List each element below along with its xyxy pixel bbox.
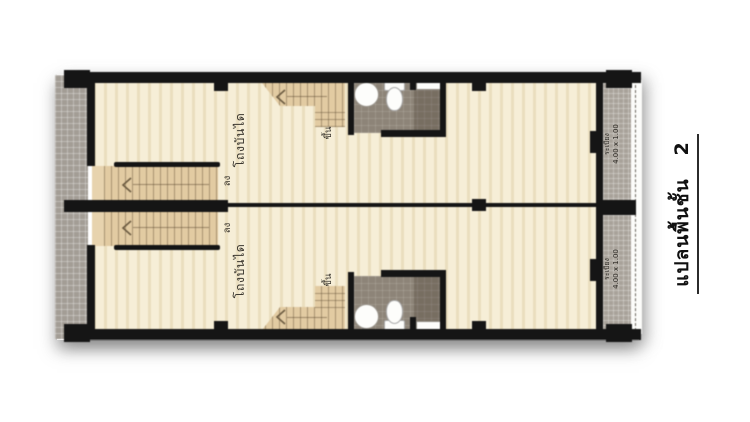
unit-lower-up-label: ขึ้น bbox=[322, 268, 334, 292]
page-title-text: แปลนพื้นชั้น bbox=[667, 178, 697, 286]
unit-upper-balcony-name: ระเบียง bbox=[603, 133, 612, 155]
page-title-spacer bbox=[671, 156, 693, 179]
page-title-number: 2 bbox=[671, 141, 693, 155]
unit-upper-balcony-label: ระเบียง 4.00 x 1.00 bbox=[602, 120, 622, 168]
page-title: แปลนพื้นชั้น 2 bbox=[667, 134, 699, 294]
unit-upper-hall-label: โถงบันได bbox=[232, 108, 248, 172]
unit-upper-down-label: ลง bbox=[221, 169, 233, 193]
unit-lower-balcony-label: ระเบียง 4.00 x 1.00 bbox=[602, 245, 622, 293]
plan-labels: โถงบันได โถงบันได ลง ลง ขึ้น ขึ้น ระเบีย… bbox=[0, 0, 750, 422]
unit-lower-balcony-name: ระเบียง bbox=[603, 258, 612, 280]
unit-lower-hall-label: โถงบันได bbox=[232, 239, 248, 303]
unit-upper-balcony-size: 4.00 x 1.00 bbox=[612, 124, 621, 164]
unit-upper-up-label: ขึ้น bbox=[322, 121, 334, 145]
unit-lower-down-label: ลง bbox=[221, 216, 233, 240]
unit-lower-balcony-size: 4.00 x 1.00 bbox=[612, 249, 621, 289]
